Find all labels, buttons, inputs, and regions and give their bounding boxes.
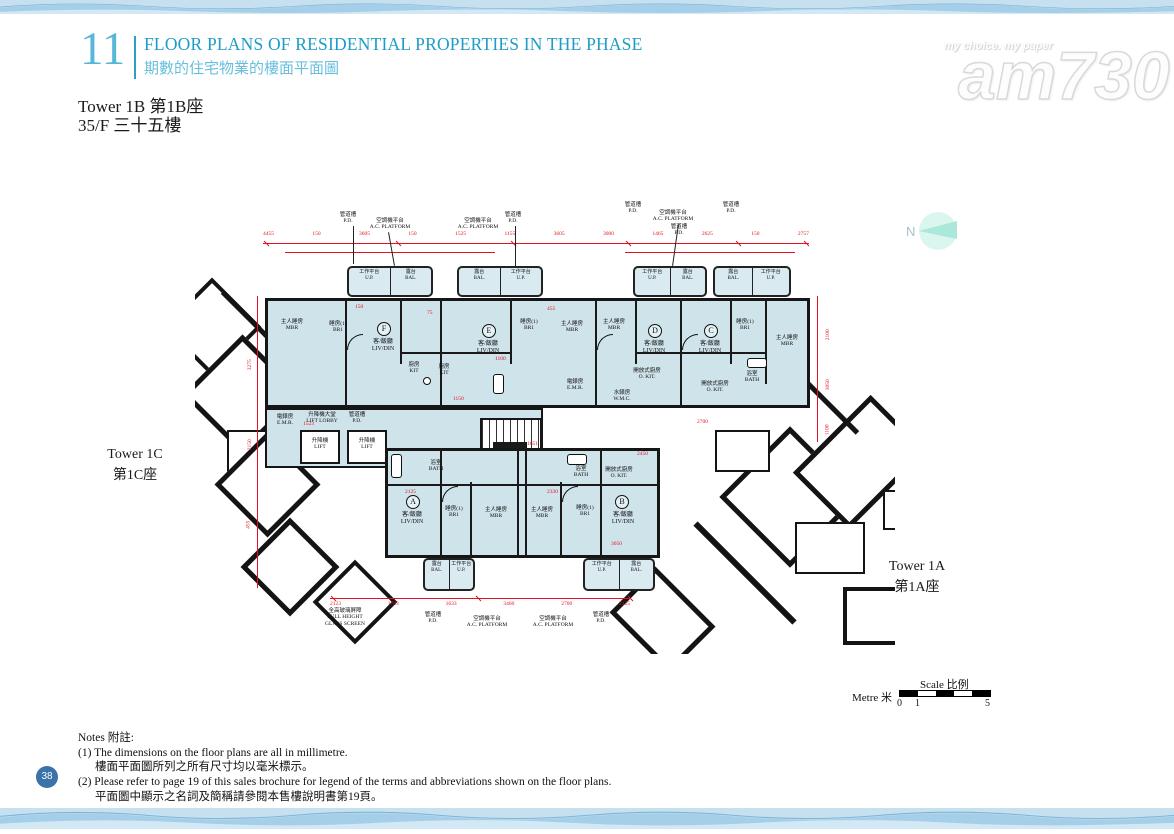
room-label-emr: 電錶房E.M.R. — [277, 414, 294, 427]
room-label-br1: 睡房(1)BR1 — [520, 319, 537, 332]
dim-number: 2125 — [405, 490, 416, 496]
dimension-line-top2 — [285, 252, 495, 253]
page-title-chinese: 期數的住宅物業的樓面平面圖 — [144, 57, 339, 78]
leader-line — [353, 226, 354, 264]
pd-label: 管道槽P.D. — [505, 212, 522, 225]
scale-tick-0: 0 — [897, 698, 902, 709]
room-label-mbr: 主人睡房MBR — [485, 507, 507, 520]
dim-number: 1100 — [495, 357, 506, 363]
scale-tick-1: 1 — [915, 698, 920, 709]
room-label-mbr: 主人睡房MBR — [281, 319, 303, 332]
balcony-unit-d: 工作平台U.P. 露台BAL. — [633, 266, 707, 297]
tower-1a-room — [883, 490, 895, 530]
notes-heading: Notes 附註: — [78, 731, 611, 746]
wall — [345, 298, 347, 408]
glass-screen-label: 全高玻璃屏障FULL HEIGHTGLASS SCREEN — [325, 608, 365, 627]
room-label-br1: 睡房(1)BR1 — [736, 319, 753, 332]
pd-label: 管道槽P.D. — [723, 202, 740, 215]
dim-number: 455 — [246, 521, 252, 529]
wall — [560, 482, 562, 558]
room-label-mbr: 主人睡房MBR — [561, 321, 583, 334]
section-number: 11 — [80, 26, 125, 73]
bathtub — [567, 454, 587, 465]
room-label-okit: 開放式廚房O. KIT. — [605, 467, 633, 480]
pd-label: 管道槽P.D. — [671, 224, 688, 237]
bathtub — [747, 358, 767, 368]
dim-number: 3050 — [826, 379, 832, 390]
pd-label: 管道槽P.D. — [349, 412, 366, 425]
north-letter: N — [906, 224, 915, 239]
note-line-zh: 樓面平面圖所列之所有尺寸均以毫米標示。 — [95, 760, 611, 775]
dim-number: 1651 — [527, 442, 538, 448]
dim-number: 3050 — [611, 542, 622, 548]
unit-marker-e: E — [482, 324, 496, 338]
balcony-label: 露台BAL. — [715, 268, 752, 295]
unit-marker-f: F — [377, 322, 391, 336]
north-arrow: N — [898, 208, 962, 261]
tower-1a-room — [795, 522, 865, 574]
bathtub — [493, 374, 504, 394]
pd-label: 管道槽P.D. — [425, 612, 442, 625]
balcony-unit-c: 露台BAL. 工作平台U.P. — [713, 266, 791, 297]
top-wave-banner — [0, 0, 1174, 14]
balcony-unit-e: 露台BAL. 工作平台U.P. — [457, 266, 543, 297]
utility-platform-label: 工作平台U.P. — [500, 268, 542, 295]
room-label-kit: 廚房KIT — [438, 364, 449, 377]
tower-1a-room — [715, 430, 770, 472]
notes-block: Notes 附註: (1) The dimensions on the floo… — [78, 731, 611, 805]
room-label-bath: 浴室BATH — [429, 460, 443, 473]
dim-number: 2700 — [697, 420, 708, 426]
balcony-label: 露台BAL. — [390, 268, 432, 295]
unit-marker-c: C — [704, 324, 718, 338]
note-line-zh: 平面圖中顯示之名詞及簡稱請參閱本售樓說明書第19頁。 — [95, 790, 611, 805]
dim-number: 2150 — [248, 439, 254, 450]
unit-marker-a: A — [406, 495, 420, 509]
wall — [635, 298, 637, 364]
dim-number: 2100 — [826, 329, 832, 340]
dimension-line-right — [817, 296, 818, 442]
ac-platform-label: 空調機平台A.C. PLATFORM — [370, 218, 411, 231]
room-label-okit: 開放式廚房O. KIT. — [633, 368, 661, 381]
dimension-line-top2 — [625, 252, 795, 253]
room-label-bath: 浴室BATH — [574, 466, 588, 479]
room-label-okit: 開放式廚房O. KIT. — [701, 381, 729, 394]
bottom-wave-banner — [0, 808, 1174, 829]
room-label-br1: 睡房(1)BR1 — [576, 505, 593, 518]
wall — [600, 448, 602, 558]
dimension-row-bottom: 21231783 16333460 27002125 — [330, 602, 630, 608]
dimension-row-top: 4455150 3605150 15251155 36053000 146526… — [263, 232, 809, 238]
dimension-line-left — [257, 296, 258, 588]
dim-number: 1100 — [826, 424, 832, 435]
bathtub — [391, 454, 402, 478]
room-label-livdin: 客/飯廳LIV/DIN — [699, 341, 721, 355]
ac-platform-label: 空調機平台A.C. PLATFORM — [533, 616, 574, 629]
room-label-mbr: 主人睡房MBR — [531, 507, 553, 520]
page-title: FLOOR PLANS OF RESIDENTIAL PROPERTIES IN… — [144, 34, 643, 55]
utility-platform-label: 工作平台U.P. — [349, 268, 390, 295]
unit-marker-d: D — [648, 324, 662, 338]
room-label-livdin: 客/飯廳LIV/DIN — [612, 512, 634, 526]
dim-number: 1523 — [303, 422, 314, 428]
room-label-lift: 升降機LIFT — [359, 438, 376, 451]
room-label-kit: 廚房KIT — [408, 362, 419, 375]
wall — [400, 298, 402, 364]
wall — [525, 448, 527, 558]
room-label-wmc: 水錶房W.M.C. — [613, 390, 630, 403]
unit-marker-b: B — [615, 495, 629, 509]
note-line: (2) Please refer to page 19 of this sale… — [78, 775, 611, 790]
room-label-mbr: 主人睡房MBR — [776, 335, 798, 348]
utility-platform-label: 工作平台U.P. — [449, 560, 474, 589]
tower-1c-label: Tower 1C第1C座 — [80, 444, 190, 486]
balcony-label: 露台BAL. — [670, 268, 706, 295]
balcony-unit-b: 工作平台U.P. 露台BAL. — [583, 558, 655, 591]
dim-number: 2330 — [547, 490, 558, 496]
scale-tick-5: 5 — [985, 698, 990, 709]
balcony-label: 露台BAL. — [425, 560, 449, 589]
dim-number: 150 — [355, 305, 363, 311]
dim-number: 3275 — [248, 359, 254, 370]
wall — [765, 298, 767, 384]
room-label-mbr: 主人睡房MBR — [603, 319, 625, 332]
pd-label: 管道槽P.D. — [625, 202, 642, 215]
floor-plan: 4455150 3605150 15251155 36053000 146526… — [195, 192, 895, 654]
wall — [510, 298, 512, 364]
toilet — [423, 377, 431, 385]
ac-platform-label: 空調機平台A.C. PLATFORM — [458, 218, 499, 231]
leader-line — [515, 226, 516, 266]
room-label-emr: 電錶房E.M.R. — [567, 379, 584, 392]
am730-logo: am730 — [958, 42, 1170, 110]
scale-unit: Metre 米 — [852, 689, 892, 705]
room-label-livdin: 客/飯廳LIV/DIN — [372, 339, 394, 353]
utility-platform-label: 工作平台U.P. — [635, 268, 670, 295]
dim-number: 2450 — [637, 452, 648, 458]
utility-platform-label: 工作平台U.P. — [752, 268, 790, 295]
ac-platform-label: 空調機平台A.C. PLATFORM — [467, 616, 508, 629]
page-number-badge: 38 — [36, 766, 58, 788]
wall — [470, 482, 472, 558]
room-label-lift: 升降機LIFT — [312, 438, 329, 451]
utility-platform-label: 工作平台U.P. — [585, 560, 619, 589]
wall — [385, 484, 660, 486]
wall — [730, 298, 732, 364]
dim-number: 75 — [427, 311, 433, 317]
room-label-br1: 睡房(1)BR1 — [445, 506, 462, 519]
header-divider — [134, 36, 136, 79]
dim-number: 455 — [547, 307, 555, 313]
room-label-br1: 睡房(1)BR1 — [329, 321, 346, 334]
scale-strip — [899, 690, 991, 697]
room-label-bath: 浴室BATH — [745, 371, 759, 384]
room-label-livdin: 客/飯廳LIV/DIN — [477, 341, 499, 355]
dim-number: 1150 — [453, 397, 464, 403]
dimension-line-top — [263, 243, 809, 244]
note-line: (1) The dimensions on the floor plans ar… — [78, 746, 611, 761]
pd-label: 管道槽P.D. — [593, 612, 610, 625]
balcony-label: 露台BAL. — [459, 268, 500, 295]
balcony-label: 露台BAL. — [619, 560, 654, 589]
wall — [517, 448, 519, 558]
balcony-unit-a: 露台BAL. 工作平台U.P. — [423, 558, 475, 591]
floor-label: 35/F 三十五樓 — [78, 111, 181, 136]
pd-label: 管道槽P.D. — [340, 212, 357, 225]
room-label-livdin: 客/飯廳LIV/DIN — [643, 341, 665, 355]
wall — [595, 298, 597, 408]
room-label-livdin: 客/飯廳LIV/DIN — [401, 512, 423, 526]
ac-platform-label: 空調機平台A.C. PLATFORM — [653, 210, 694, 223]
balcony-unit-f: 工作平台U.P. 露台BAL. — [347, 266, 433, 297]
tower-1a-label: Tower 1A第1A座 — [862, 556, 972, 598]
